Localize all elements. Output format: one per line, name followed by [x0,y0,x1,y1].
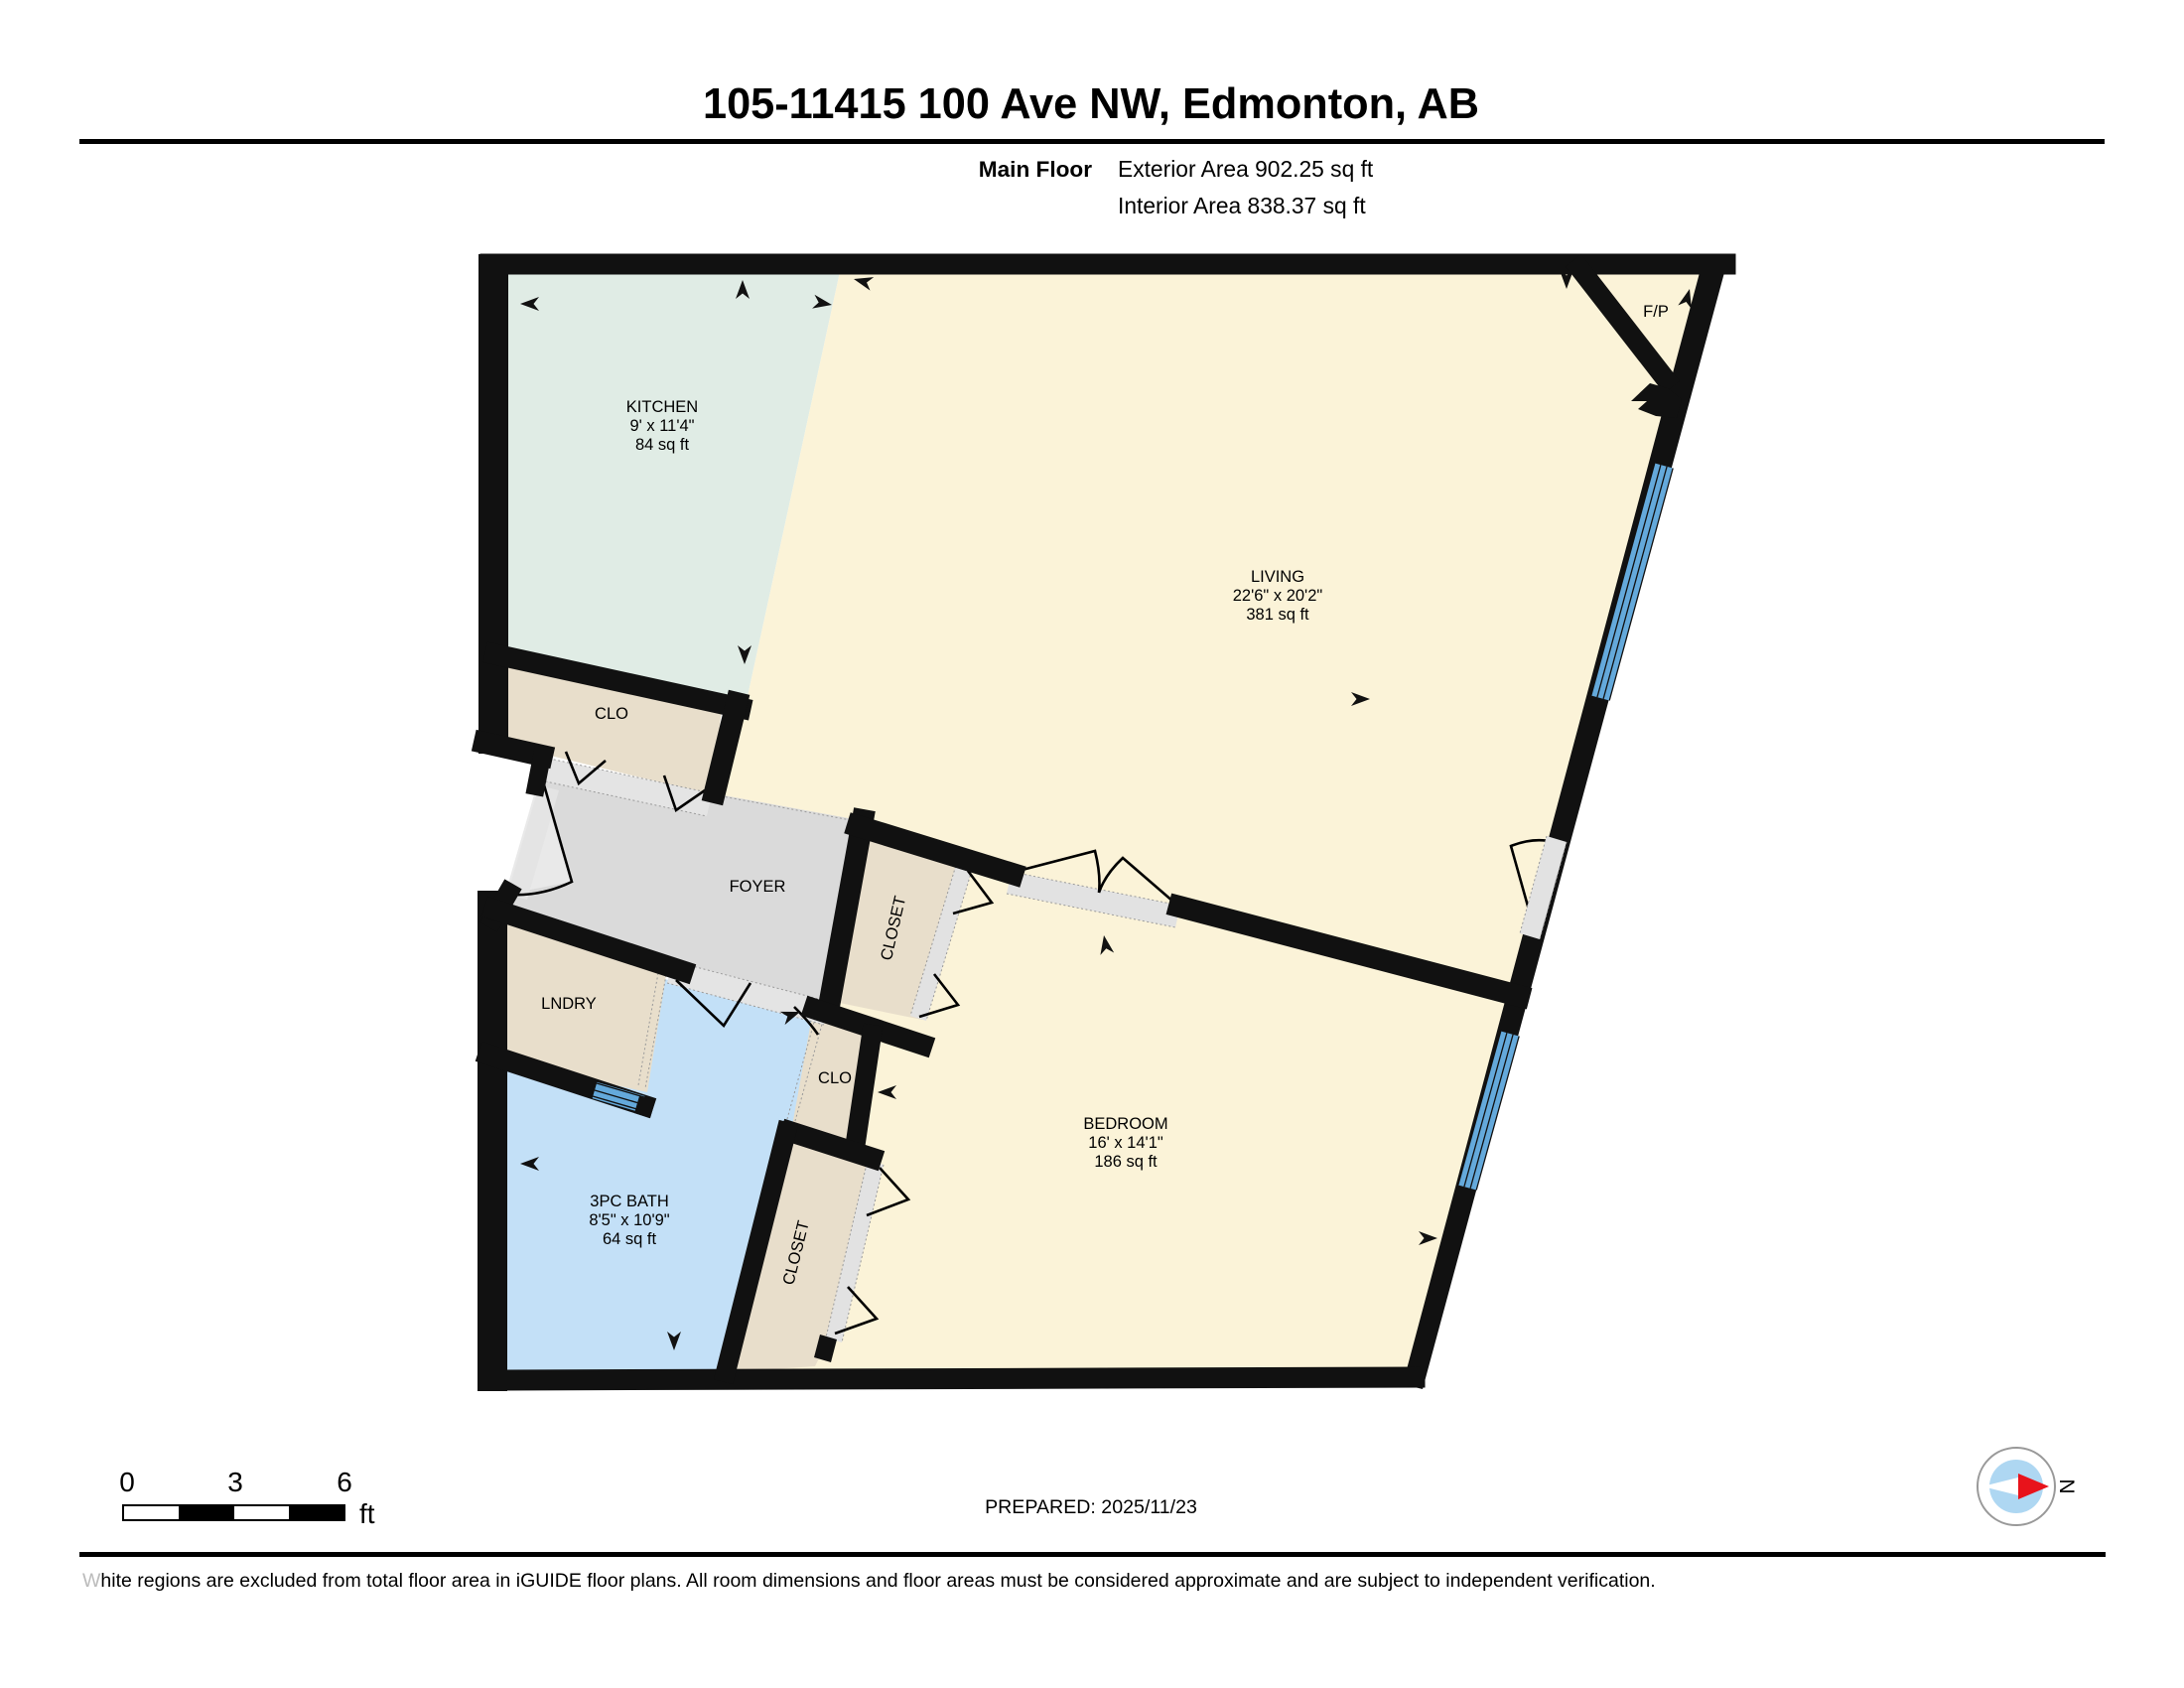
svg-text:9' x 11'4": 9' x 11'4" [629,417,694,435]
svg-text:PREPARED: 2025/11/23: PREPARED: 2025/11/23 [985,1496,1197,1518]
svg-text:F/P: F/P [1643,303,1669,321]
svg-text:64 sq ft: 64 sq ft [603,1230,657,1248]
svg-text:White regions are excluded fro: White regions are excluded from total fl… [82,1570,1656,1592]
svg-text:CLO: CLO [818,1069,852,1087]
svg-text:Main Floor: Main Floor [979,157,1092,182]
svg-text:186 sq ft: 186 sq ft [1094,1153,1158,1171]
svg-text:LIVING: LIVING [1251,568,1304,586]
svg-text:8'5" x 10'9": 8'5" x 10'9" [589,1211,669,1229]
svg-text:Exterior Area 902.25 sq ft: Exterior Area 902.25 sq ft [1118,156,1374,182]
svg-text:KITCHEN: KITCHEN [626,398,698,416]
svg-text:3PC BATH: 3PC BATH [590,1193,668,1210]
svg-text:381 sq ft: 381 sq ft [1246,606,1309,624]
svg-text:Interior Area 838.37 sq ft: Interior Area 838.37 sq ft [1118,193,1366,218]
svg-text:FOYER: FOYER [730,878,786,896]
svg-text:84 sq ft: 84 sq ft [635,436,690,454]
svg-text:3: 3 [227,1467,243,1497]
svg-text:ft: ft [359,1498,375,1529]
svg-text:22'6" x 20'2": 22'6" x 20'2" [1233,587,1323,605]
svg-text:0: 0 [119,1467,135,1497]
svg-text:16' x 14'1": 16' x 14'1" [1088,1134,1163,1152]
svg-text:BEDROOM: BEDROOM [1083,1115,1167,1133]
svg-text:6: 6 [337,1467,352,1497]
svg-text:105-11415 100 Ave NW, Edmonton: 105-11415 100 Ave NW, Edmonton, AB [703,80,1479,128]
svg-text:N: N [2055,1478,2078,1493]
svg-text:CLO: CLO [595,705,628,723]
svg-text:LNDRY: LNDRY [541,995,597,1013]
